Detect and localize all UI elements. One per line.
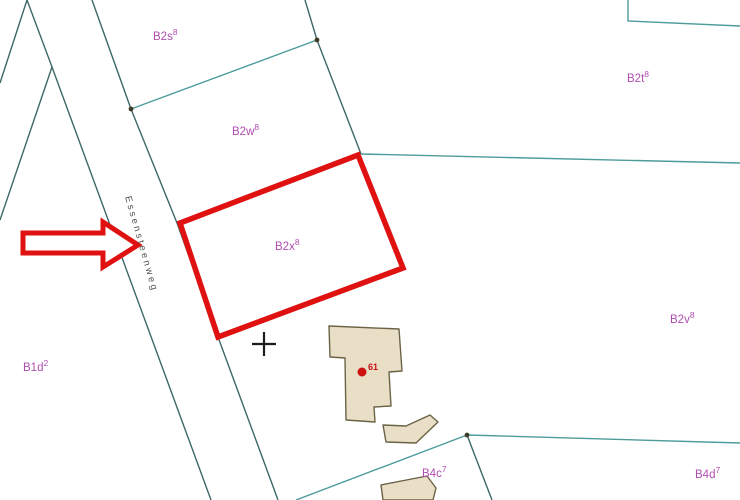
house-marker-dot [358,368,367,377]
parcel-code: B1d [23,362,43,374]
parcel-code: B2t [627,73,645,85]
parcel-code-superscript: 2 [43,358,48,368]
vertex-dot [315,38,320,43]
vertex-dot [129,107,134,112]
house-number-label: 61 [368,362,378,372]
vertex-dot [465,433,470,438]
parcel-code-superscript: 8 [173,27,178,37]
parcel-code-superscript: 7 [715,465,720,475]
parcel-code: B2s [153,31,173,43]
parcel-code: B2x [275,241,295,253]
parcel-code-superscript: 7 [442,464,447,474]
parcel-code-superscript: 8 [644,69,649,79]
map-viewport[interactable]: 61B2s8B2w8B2x8B2t8B2v8B1d2B4c7B4d7Essens… [0,0,740,500]
parcel-code-superscript: 8 [254,122,259,132]
parcel-code-superscript: 8 [690,310,695,320]
parcel-code: B2w [232,126,255,138]
parcel-code: B4c [422,468,442,480]
parcel-code: B4d [695,469,715,481]
map-canvas[interactable]: 61B2s8B2w8B2x8B2t8B2v8B1d2B4c7B4d7Essens… [0,0,740,500]
parcel-code: B2v [670,314,690,326]
parcel-code-superscript: 8 [295,237,300,247]
